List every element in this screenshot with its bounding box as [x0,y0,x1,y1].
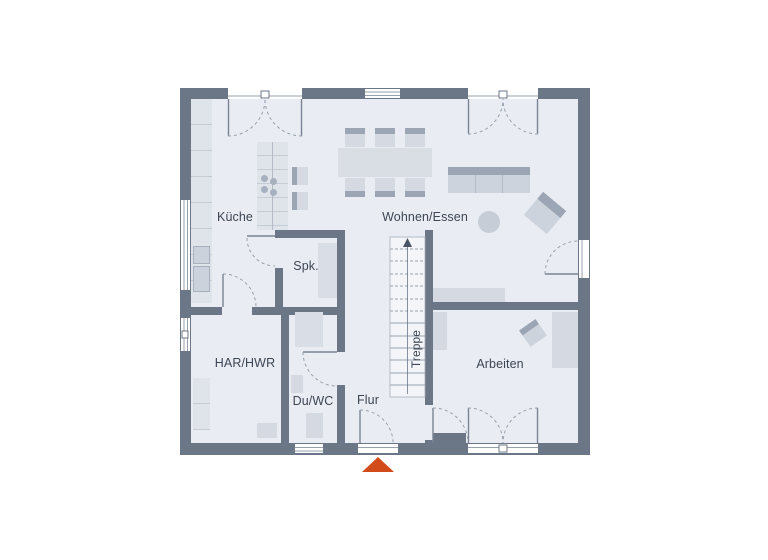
window-left-kitchen [181,200,190,290]
french-door-top-left [228,88,302,136]
room-label-du-wc: Du/WC [293,394,334,408]
room-label-arbeiten: Arbeiten [476,357,523,371]
plan-linework [180,88,590,455]
door-du-wc [303,352,337,386]
terrace-door-right [545,240,589,278]
french-door-top-right [468,88,538,134]
room-label-kueche: Küche [217,210,253,224]
stairs-label-treppe: Treppe [409,330,423,368]
door-arbeiten [433,408,468,443]
french-door-bottom [468,408,538,453]
door-har-hwr [223,274,256,307]
entrance-door [358,410,398,453]
entrance-arrow-icon [362,457,394,472]
room-label-wohnen-essen: Wohnen/Essen [382,210,468,224]
stairs [390,237,425,397]
door-kitchen-hall [247,236,275,266]
floor-plan [180,88,590,455]
window-left-utility [181,318,190,351]
room-label-spk: Spk. [293,259,318,273]
window-bottom-duwc [295,444,323,453]
window-top [365,89,400,98]
room-label-flur: Flur [357,393,379,407]
room-label-har-hwr: HAR/HWR [215,356,275,370]
